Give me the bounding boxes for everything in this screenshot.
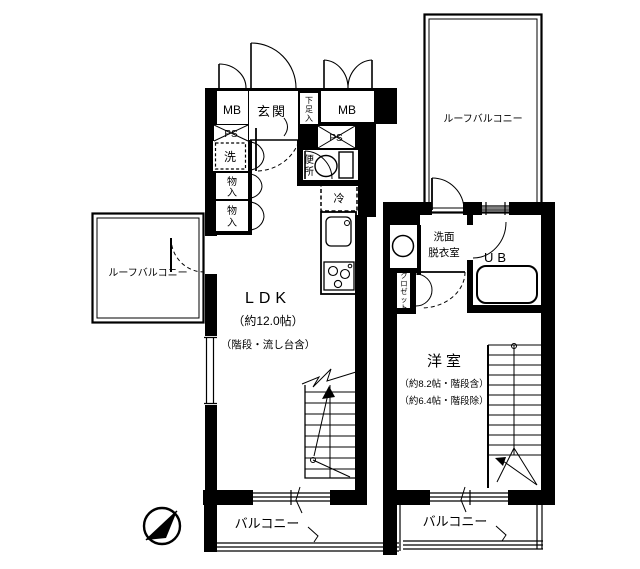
toilet-label-2: 所 bbox=[304, 166, 314, 178]
fridge-label: 冷 bbox=[334, 192, 345, 205]
ldk-size-label: （約12.0帖） bbox=[232, 313, 303, 328]
kitchen-tap bbox=[345, 221, 350, 226]
stair-arrow-head-2 bbox=[495, 457, 506, 466]
ps-right-label: PS bbox=[329, 133, 343, 144]
mb-right-door-arc-a bbox=[324, 60, 348, 88]
ldk-label: LDK bbox=[245, 290, 291, 307]
north-compass-icon bbox=[144, 508, 180, 544]
storage1-label-2: 入 bbox=[227, 188, 237, 199]
storage2-label-2: 入 bbox=[227, 218, 237, 229]
unit2-labels: ルーフバルコニー 洗面 脱衣室 UB ク ロ ゼ ッ ト 洋室 （約8.2帖・階… bbox=[399, 113, 522, 529]
stairs-unit2 bbox=[488, 344, 541, 489]
stair-break-line bbox=[302, 369, 356, 387]
roof-balcony-right-label: ルーフバルコニー bbox=[443, 113, 522, 125]
entrance-door-arcs bbox=[219, 43, 372, 88]
stove-knob bbox=[348, 264, 352, 268]
laundry-label: 洗 bbox=[224, 150, 236, 164]
washroom-label-1: 洗面 bbox=[434, 231, 455, 243]
unit-bath-label: UB bbox=[484, 250, 510, 265]
closet-bifold bbox=[416, 274, 432, 306]
ub-door-gap bbox=[467, 225, 473, 260]
stove-burner-1 bbox=[329, 267, 338, 276]
stairs-unit1 bbox=[302, 369, 356, 478]
kitchen-sink bbox=[326, 217, 351, 246]
balcony-door-gap bbox=[205, 236, 217, 274]
stove-burner-3 bbox=[334, 280, 341, 287]
shoe-box-label-2: 足 bbox=[305, 105, 313, 114]
toilet-label-1: 便 bbox=[304, 153, 314, 166]
roof-balcony-left-label: ルーフバルコニー bbox=[108, 267, 187, 279]
balcony-label-unit1: バルコニー bbox=[235, 516, 300, 531]
washroom-door-arc bbox=[421, 272, 465, 308]
balcony-label-tail-unit1 bbox=[308, 527, 318, 542]
washroom-label-2: 脱衣室 bbox=[428, 246, 460, 259]
storage2-label-1: 物 bbox=[227, 204, 237, 217]
ps-left-label: PS bbox=[224, 129, 238, 140]
floor-plan: MB 玄関 下 足 入 MB PS PS 洗 物 入 物 入 便 所 冷 LDK… bbox=[0, 0, 640, 569]
mb-right-label: MB bbox=[338, 103, 356, 117]
balcony-label-unit2: バルコニー bbox=[423, 514, 488, 529]
storage1-label-1: 物 bbox=[227, 175, 237, 188]
entrance-door-arc bbox=[251, 43, 296, 88]
western-room-label: 洋室 bbox=[427, 353, 465, 370]
mb-left-label: MB bbox=[223, 103, 241, 117]
shoe-box-label-1: 下 bbox=[305, 96, 313, 105]
bathtub bbox=[477, 266, 537, 303]
mb-left-door-arc bbox=[219, 64, 246, 88]
entrance-label: 玄関 bbox=[257, 104, 287, 119]
shoe-box-label-3: 入 bbox=[305, 114, 313, 123]
stove-burner-2 bbox=[341, 270, 350, 279]
closet-label-5: ト bbox=[400, 303, 407, 312]
ldk-note-label: （階段・流し台含） bbox=[221, 338, 316, 351]
balcony-label-tail-unit2 bbox=[496, 526, 506, 541]
mb-right-door-arc-b bbox=[348, 60, 372, 88]
western-room-size-excl: （約6.4帖・階段除） bbox=[399, 395, 488, 407]
western-room-size-incl: （約8.2帖・階段含） bbox=[399, 378, 488, 390]
